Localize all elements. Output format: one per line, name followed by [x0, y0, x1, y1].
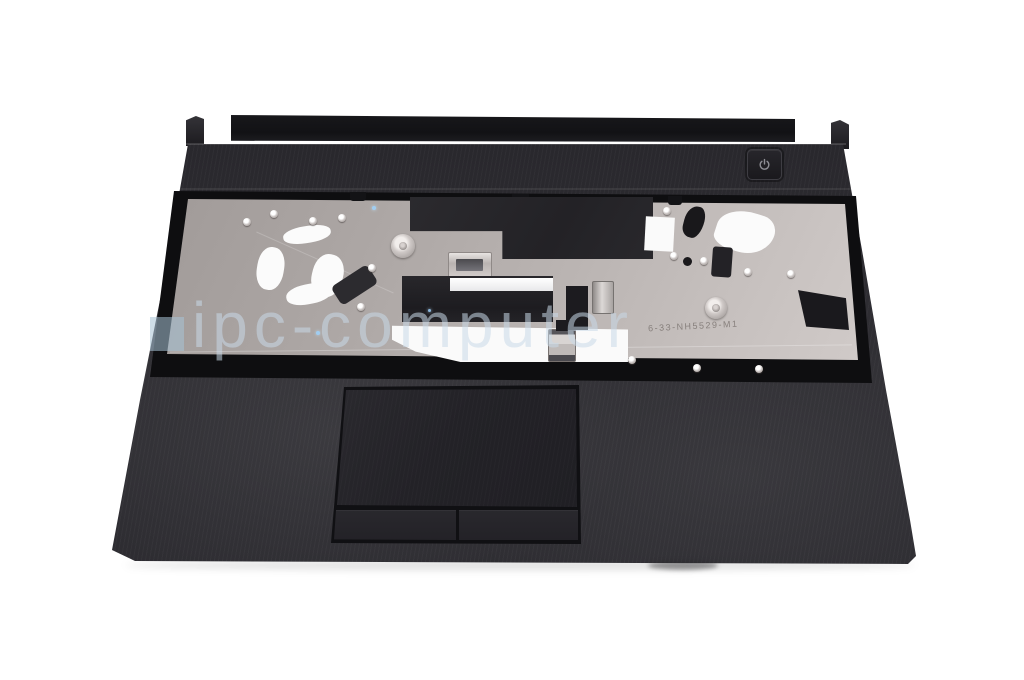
bracket-slot	[456, 259, 483, 271]
screw-boss	[391, 234, 415, 258]
touchpad-button-left	[334, 510, 456, 540]
screw-head	[368, 264, 376, 272]
hole-cutout	[683, 257, 692, 266]
screw-head	[309, 217, 317, 225]
screw-head	[338, 214, 346, 222]
screw-head	[693, 364, 701, 372]
boss-hole	[399, 242, 407, 250]
touchpad-button-right	[459, 510, 578, 540]
screw-head	[243, 218, 251, 226]
watermark-text: ipc-computer	[192, 288, 892, 362]
screw-head	[755, 365, 763, 373]
keyboard-opening-ridge	[176, 188, 854, 190]
screw-head	[663, 207, 671, 215]
bottom-edge-smudge	[648, 561, 718, 570]
screw-head	[700, 257, 708, 265]
screw-head	[270, 210, 278, 218]
watermark-logo-square	[150, 317, 184, 351]
reflection-sparkle	[372, 206, 376, 210]
top-edge-highlight	[186, 143, 846, 145]
screw-head	[744, 268, 752, 276]
touchpad-surface	[337, 389, 577, 507]
rect-cutout	[644, 216, 675, 251]
product-photo-laptop-palmrest: 6-33-NH5529-M1 ipc-computer	[0, 0, 1024, 680]
black-tab	[711, 246, 733, 277]
power-button	[747, 149, 782, 180]
hinge-cover-bar	[231, 111, 795, 142]
power-icon	[758, 158, 771, 171]
latch-tab	[668, 196, 682, 205]
latch-tab	[350, 192, 366, 201]
screw-head	[670, 252, 678, 260]
screw-head	[787, 270, 795, 278]
left-corner-post	[186, 116, 204, 146]
